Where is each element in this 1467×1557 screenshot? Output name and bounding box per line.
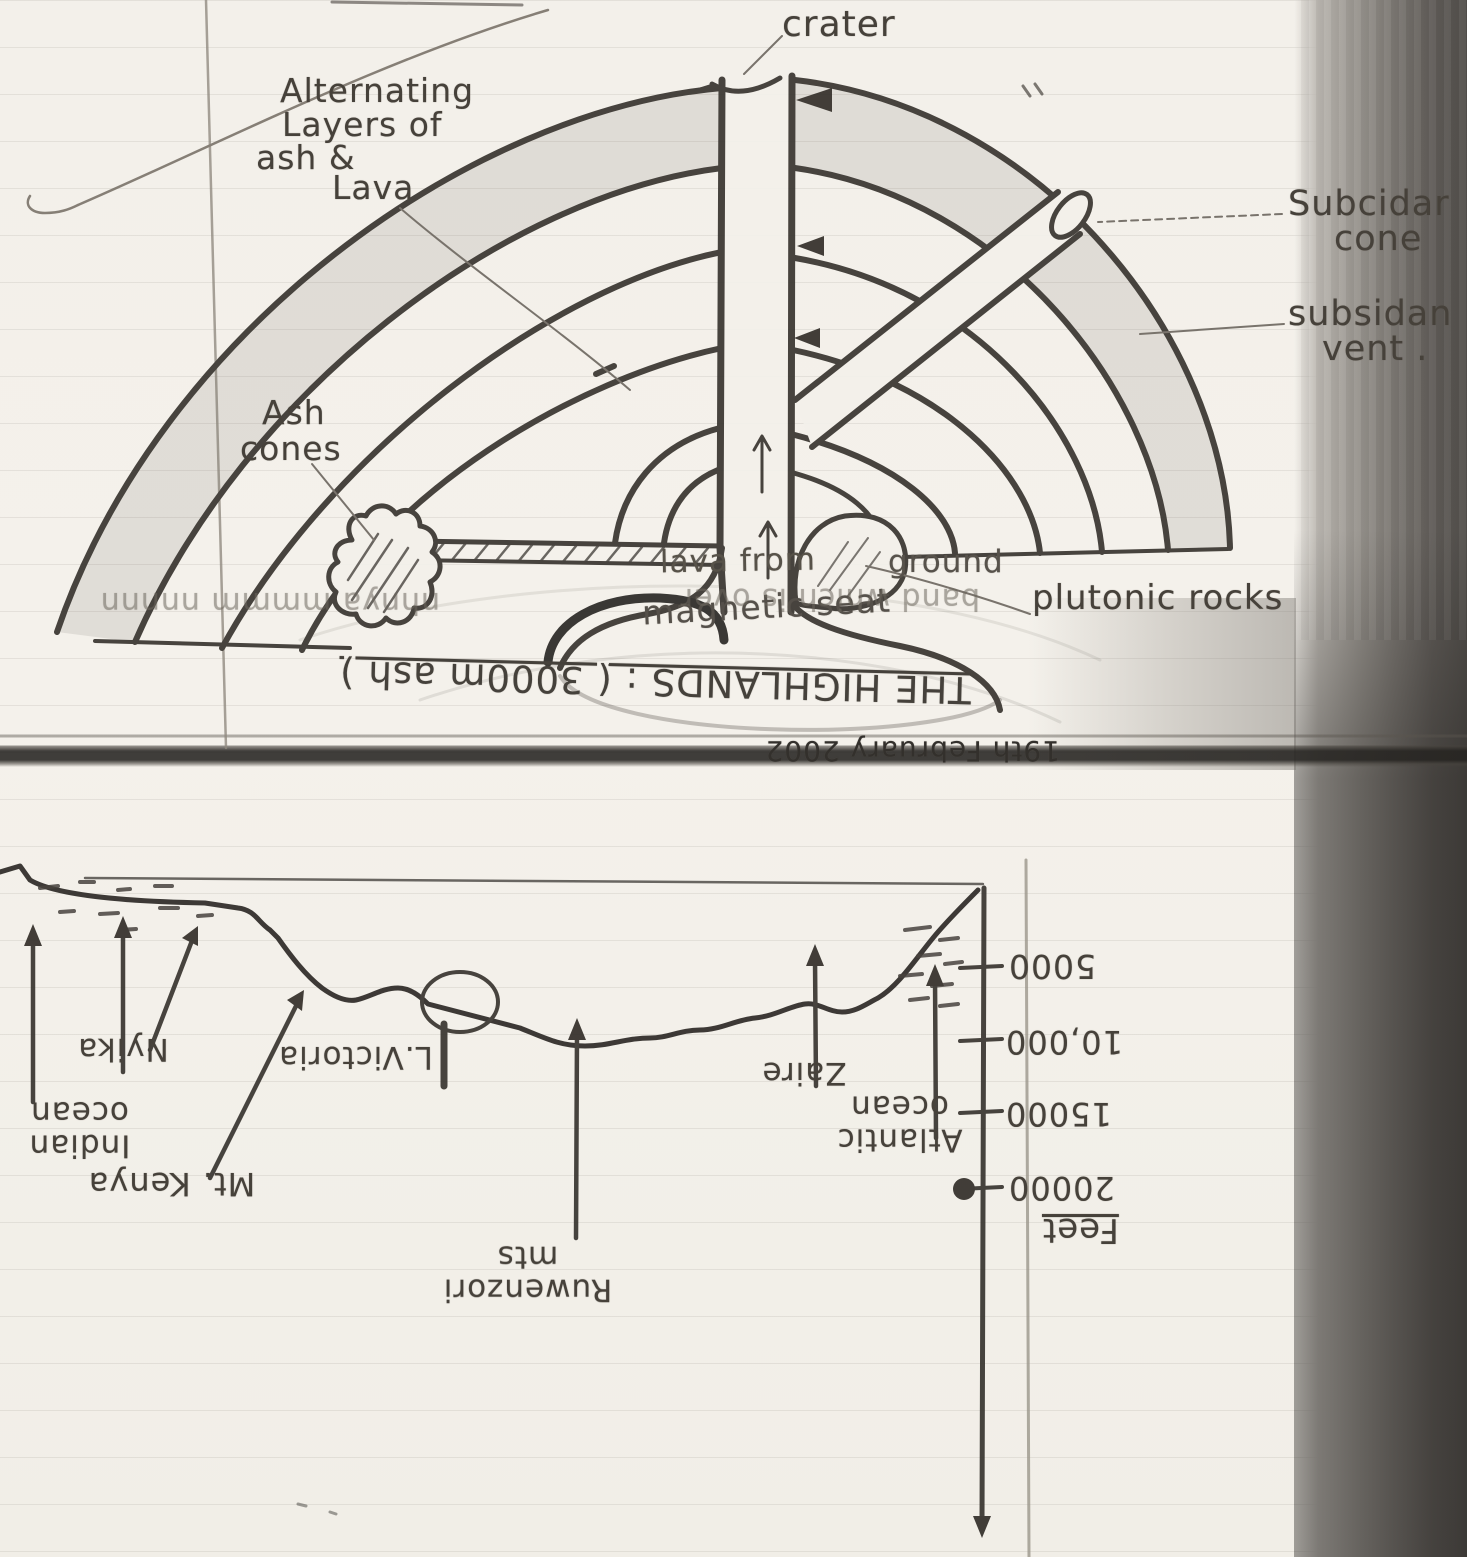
show-through-faint-left: nhnya mmmm nnnnn <box>0 586 440 618</box>
crater-label: crater <box>782 6 896 44</box>
cutoff-line-top <box>332 2 522 5</box>
nyika-label: Nyika <box>58 1032 188 1065</box>
layer-arc <box>664 470 718 543</box>
ruwenzori-arrow <box>576 1032 577 1238</box>
atlantic-ocean-label: Atlanticocean <box>812 1090 987 1156</box>
zaire-label: Zaire <box>744 1056 864 1089</box>
crater-leader <box>744 36 782 74</box>
vent-pipe-left <box>720 80 724 612</box>
ground-label: ground <box>888 546 1004 579</box>
show-through-faint-right: band which is over <box>430 582 980 614</box>
subsidiary-vent-label-line2: vent . <box>1322 331 1428 368</box>
subsidiary-cone-leader <box>1098 214 1282 222</box>
l-victoria-label: L.Victoria <box>258 1040 453 1073</box>
stray-marks <box>298 1504 336 1514</box>
profile-top-line <box>85 878 983 884</box>
ash-cones-leader <box>312 464 374 540</box>
vent-pipe-fill <box>722 76 793 618</box>
notebook-scan-page: crater Alternating Layers of ash & Lava … <box>0 0 1467 1557</box>
mt-kenya-arrow <box>210 1002 298 1178</box>
ash-cones-label-line1: Ash <box>262 396 326 431</box>
tick-dot-20000 <box>953 1178 975 1200</box>
scale-10000-label: 10,000 <box>1005 1024 1123 1058</box>
subsidiary-vent-upper <box>795 192 1058 400</box>
lava-from-label: lava from <box>660 544 817 580</box>
scale-5000-label: 5000 <box>1008 948 1096 983</box>
vent-pipe-right <box>791 76 792 612</box>
scale-unit-feet-label: Feet <box>1042 1212 1119 1248</box>
elevation-axis <box>953 888 1002 1538</box>
scale-20000-label: 20000 <box>1008 1170 1115 1204</box>
tick-10000 <box>960 1039 1002 1041</box>
alternating-layers-label-line1: Alternating <box>280 74 474 109</box>
indian-ocean-label: Indianocean <box>2 1096 157 1162</box>
tick-marks <box>1023 84 1042 96</box>
subsidiary-vent-label-line1: subsidan <box>1288 296 1452 333</box>
show-through-date: 19th February 2002 <box>840 736 1060 766</box>
scale-15000-label: 15000 <box>1005 1096 1112 1130</box>
lake-victoria-circle <box>422 972 498 1032</box>
alternating-layers-label-line4: Lava <box>332 171 414 206</box>
ash-cones-label-line2: cones <box>240 432 342 467</box>
plutonic-rocks-label: plutonic rocks <box>1032 580 1283 616</box>
down-arrow-icon <box>973 1516 991 1538</box>
subsidiary-cone-label-line2: cone <box>1334 221 1422 258</box>
mt-kenya-label: Mt. Kenya <box>64 1166 279 1200</box>
tick-5000 <box>960 966 1002 968</box>
subsidiary-cone-label-line1: Subcidar <box>1288 186 1450 223</box>
ruwenzori-label: Ruwenzorimts <box>420 1240 635 1306</box>
pencil-drawing <box>0 0 1467 1557</box>
crater-text: crater <box>782 4 896 45</box>
